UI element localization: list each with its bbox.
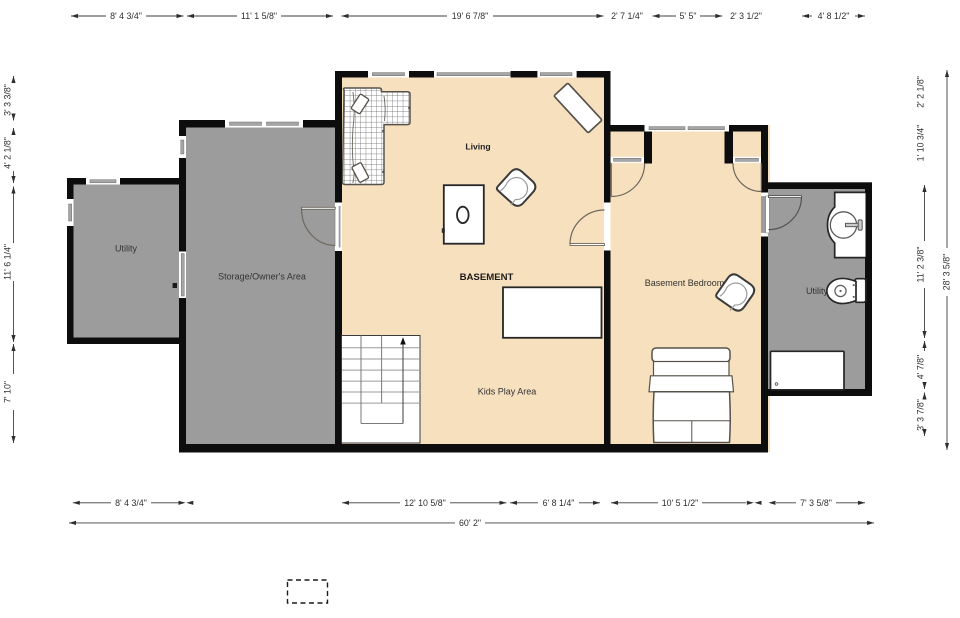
svg-text:Basement Bedroom: Basement Bedroom <box>645 278 725 288</box>
svg-text:3' 3 3/8": 3' 3 3/8" <box>3 84 13 116</box>
svg-text:60' 2": 60' 2" <box>459 518 481 528</box>
svg-text:11' 1 5/8": 11' 1 5/8" <box>241 11 277 21</box>
svg-text:BASEMENT: BASEMENT <box>460 272 514 283</box>
svg-text:6' 8 1/4": 6' 8 1/4" <box>543 498 575 508</box>
svg-text:Living: Living <box>465 142 490 152</box>
svg-text:4' 2 1/8": 4' 2 1/8" <box>3 137 13 169</box>
svg-text:2' 2 1/8": 2' 2 1/8" <box>916 76 926 108</box>
svg-text:7' 3 5/8": 7' 3 5/8" <box>800 498 832 508</box>
svg-text:10' 5 1/2": 10' 5 1/2" <box>662 498 699 508</box>
svg-text:Utility: Utility <box>115 244 137 254</box>
svg-text:2' 3 1/2": 2' 3 1/2" <box>730 11 762 21</box>
svg-text:11' 6 1/4": 11' 6 1/4" <box>3 244 13 280</box>
svg-text:5' 5": 5' 5" <box>679 11 696 21</box>
svg-text:1' 10 3/4": 1' 10 3/4" <box>916 125 926 162</box>
svg-text:28' 3 5/8": 28' 3 5/8" <box>942 254 952 291</box>
svg-text:Utility: Utility <box>806 286 828 296</box>
svg-text:Kids Play Area: Kids Play Area <box>478 387 537 397</box>
svg-text:4' 7/8": 4' 7/8" <box>916 355 926 379</box>
svg-text:3' 3 7/8": 3' 3 7/8" <box>916 399 926 431</box>
svg-text:19' 6 7/8": 19' 6 7/8" <box>452 11 489 21</box>
svg-text:Storage/Owner's Area: Storage/Owner's Area <box>218 272 306 282</box>
svg-text:4' 8 1/2": 4' 8 1/2" <box>818 11 850 21</box>
svg-text:8' 4 3/4": 8' 4 3/4" <box>110 11 142 21</box>
svg-text:7' 10": 7' 10" <box>3 381 13 403</box>
svg-text:8' 4 3/4": 8' 4 3/4" <box>115 498 147 508</box>
svg-text:11' 2 3/8": 11' 2 3/8" <box>916 247 926 283</box>
svg-text:12' 10 5/8": 12' 10 5/8" <box>404 498 446 508</box>
svg-text:2' 7 1/4": 2' 7 1/4" <box>611 11 643 21</box>
